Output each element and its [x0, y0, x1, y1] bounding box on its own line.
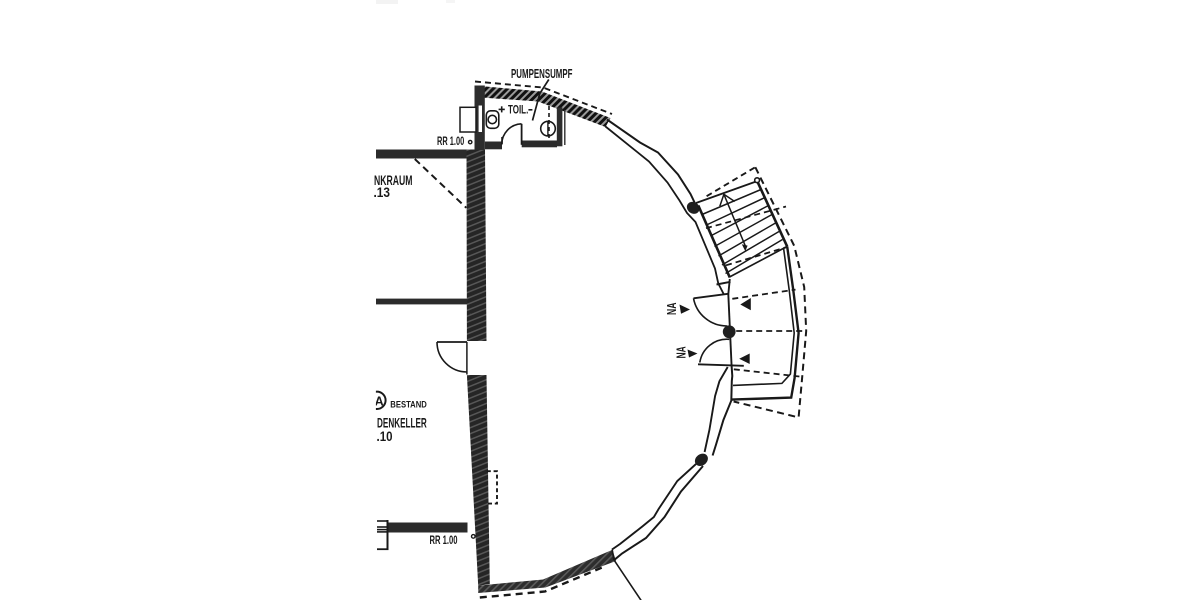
- svg-text:NA: NA: [674, 346, 689, 358]
- svg-text:.10: .10: [377, 429, 393, 444]
- svg-text:TOIL.: TOIL.: [508, 102, 528, 116]
- svg-text:BESTAND: BESTAND: [390, 400, 427, 411]
- svg-text:RR 1.00: RR 1.00: [430, 533, 458, 547]
- svg-text:RR 1.00: RR 1.00: [437, 136, 464, 148]
- svg-text:A: A: [375, 395, 384, 409]
- svg-text:NA: NA: [664, 302, 679, 315]
- svg-text:.13: .13: [374, 185, 391, 200]
- svg-text:PUMPENSUMPF: PUMPENSUMPF: [511, 67, 573, 81]
